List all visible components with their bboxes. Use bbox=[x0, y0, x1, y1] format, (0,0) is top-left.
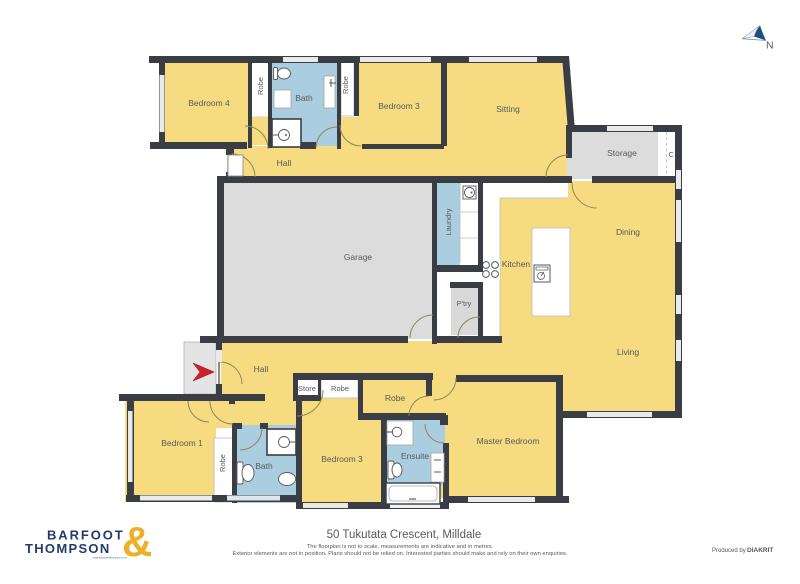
svg-text:Bath: Bath bbox=[255, 461, 273, 471]
svg-text:Master Bedroom: Master Bedroom bbox=[477, 436, 540, 446]
svg-text:Bedroom 1: Bedroom 1 bbox=[161, 438, 203, 448]
svg-text:C: C bbox=[669, 150, 675, 159]
svg-text:Robe: Robe bbox=[341, 76, 350, 94]
svg-text:DIAKRIT: DIAKRIT bbox=[747, 547, 773, 554]
svg-text:www.barfootandthompson.co.nz: www.barfootandthompson.co.nz bbox=[93, 557, 128, 560]
svg-text:Storage: Storage bbox=[607, 148, 637, 158]
svg-text:Living: Living bbox=[617, 347, 639, 357]
svg-text:Kitchen: Kitchen bbox=[502, 259, 531, 269]
svg-text:Sitting: Sitting bbox=[496, 104, 520, 114]
svg-text:The floorplan is not to scale,: The floorplan is not to scale, measureme… bbox=[307, 544, 494, 550]
svg-text:Robe: Robe bbox=[385, 393, 406, 403]
svg-text:Hall: Hall bbox=[277, 158, 292, 168]
svg-text:Bedroom 3: Bedroom 3 bbox=[321, 454, 363, 464]
svg-text:Store: Store bbox=[298, 384, 316, 393]
svg-text:THOMPSON: THOMPSON bbox=[25, 541, 111, 556]
svg-text:N: N bbox=[766, 40, 774, 52]
svg-text:Exterior elements are not in p: Exterior elements are not in position. P… bbox=[232, 551, 568, 557]
svg-text:50 Tukutata Crescent, Milldale: 50 Tukutata Crescent, Milldale bbox=[327, 529, 482, 541]
svg-text:Bath: Bath bbox=[295, 93, 313, 103]
svg-text:Robe: Robe bbox=[331, 384, 349, 393]
svg-text:P'try: P'try bbox=[457, 299, 472, 308]
svg-text:Laundry: Laundry bbox=[444, 208, 453, 235]
svg-text:Robe: Robe bbox=[256, 77, 265, 95]
svg-text:Bedroom 3: Bedroom 3 bbox=[378, 101, 420, 111]
svg-text:Robe: Robe bbox=[218, 454, 227, 472]
svg-text:Bedroom 4: Bedroom 4 bbox=[188, 98, 230, 108]
svg-text:Garage: Garage bbox=[344, 252, 373, 262]
svg-text:Produced by: Produced by bbox=[712, 548, 746, 554]
svg-text:Hall: Hall bbox=[254, 364, 269, 374]
svg-text:Ensuite: Ensuite bbox=[401, 451, 430, 461]
svg-text:Dining: Dining bbox=[616, 227, 640, 237]
